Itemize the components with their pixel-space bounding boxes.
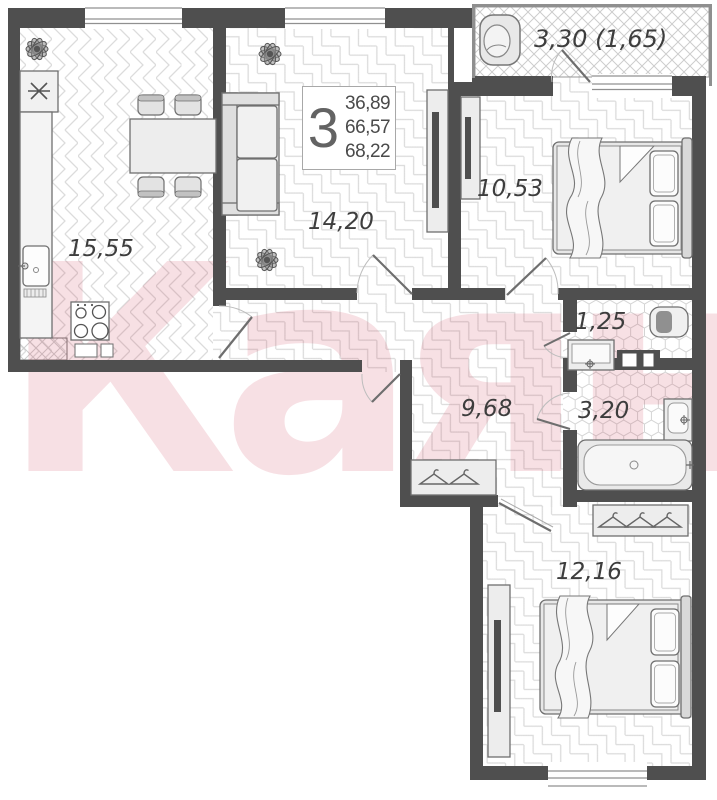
plant-icon: [25, 37, 48, 61]
kitchen-counter: [20, 112, 52, 338]
balcony-door: [552, 50, 590, 82]
pillow: [651, 609, 679, 655]
room-label-bedroom-bottom: 12,16: [556, 559, 622, 585]
balcony-wall: [709, 4, 712, 86]
living-room-window: [285, 7, 385, 29]
kitchen-door: [219, 306, 252, 358]
tv-icon: [494, 620, 501, 712]
room-label-bathroom: 3,20: [578, 398, 629, 424]
bedroom-bottom-window: [548, 762, 647, 794]
wall: [563, 490, 706, 502]
room-label-hallway: 9,68: [461, 396, 512, 422]
wall: [8, 8, 20, 372]
area-value: 66,57: [345, 116, 390, 140]
bedroom-bottom-door: [499, 499, 553, 531]
pillow: [650, 201, 678, 246]
balcony-wall: [472, 4, 475, 78]
hall-wardrobe: [411, 460, 496, 495]
room-label-kitchen: 15,55: [68, 236, 134, 262]
info-box: 3 36,89 66,57 68,22: [302, 86, 396, 170]
room-label-toilet: 1,25: [575, 309, 626, 335]
stove-icon: [71, 302, 109, 340]
niche-inset: [643, 353, 654, 367]
wall: [692, 88, 706, 780]
wall: [448, 28, 454, 88]
chair-icon: [138, 177, 164, 197]
chair-icon: [175, 177, 201, 197]
wall: [226, 288, 357, 300]
tv-icon: [465, 117, 471, 179]
bedroom-bottom-furniture: [488, 505, 691, 757]
dining-table: [130, 119, 216, 173]
tv-cabinet: [427, 90, 448, 232]
floor-plan: Каян: [0, 0, 717, 800]
bedroom-top-door: [507, 258, 558, 295]
bathroom-door: [537, 393, 570, 429]
chair-icon: [138, 95, 164, 115]
room-label-bedroom-top: 10,53: [477, 176, 543, 202]
pillow: [650, 151, 678, 196]
bathroom-sink-icon: [664, 399, 692, 441]
wall: [400, 372, 412, 507]
base-cabinet: [101, 344, 113, 357]
entrance-door: [362, 374, 400, 402]
niche-inset: [622, 353, 637, 367]
area-summary: 36,89 66,57 68,22: [345, 92, 390, 165]
plant-icon: [255, 248, 278, 272]
total-area-value: 68,22: [345, 140, 390, 164]
living-room-door: [357, 255, 412, 294]
bed-icon: [553, 138, 692, 258]
wall: [412, 288, 448, 300]
wall: [472, 76, 553, 96]
kitchen-furniture: [18, 37, 216, 357]
balcony-items: [480, 15, 520, 65]
tv-cabinet: [488, 585, 510, 757]
bedroom-top-window: [592, 74, 672, 98]
sofa-icon: [222, 93, 279, 215]
toilet-door: [544, 333, 570, 357]
room-label-balcony: 3,30 (1,65): [534, 25, 667, 53]
living-area-value: 36,89: [345, 92, 390, 116]
hallway-furniture: [411, 460, 496, 495]
base-cabinet: [75, 344, 97, 357]
pillow: [651, 661, 679, 707]
balcony-wall: [472, 4, 712, 7]
plant-icon: [258, 42, 281, 66]
wall: [647, 766, 706, 780]
toilet-icon: [650, 307, 688, 337]
wall: [385, 8, 475, 28]
wall: [448, 88, 461, 300]
wall: [470, 766, 548, 780]
bed-icon: [540, 596, 691, 718]
boiler-icon: [480, 15, 520, 65]
blanket: [555, 596, 593, 718]
kitchen-window: [85, 7, 182, 29]
rooms-count: 3: [308, 103, 339, 153]
closet-with-hangers: [593, 505, 688, 536]
room-label-living-room: 14,20: [308, 209, 374, 235]
wall: [8, 360, 362, 372]
chair-icon: [175, 95, 201, 115]
washbasin-icon: [568, 340, 614, 370]
tv-icon: [432, 112, 439, 208]
wall: [461, 288, 505, 300]
wall: [182, 8, 285, 28]
bathtub-icon: [578, 440, 694, 490]
wall: [470, 495, 483, 780]
wall: [558, 288, 706, 300]
